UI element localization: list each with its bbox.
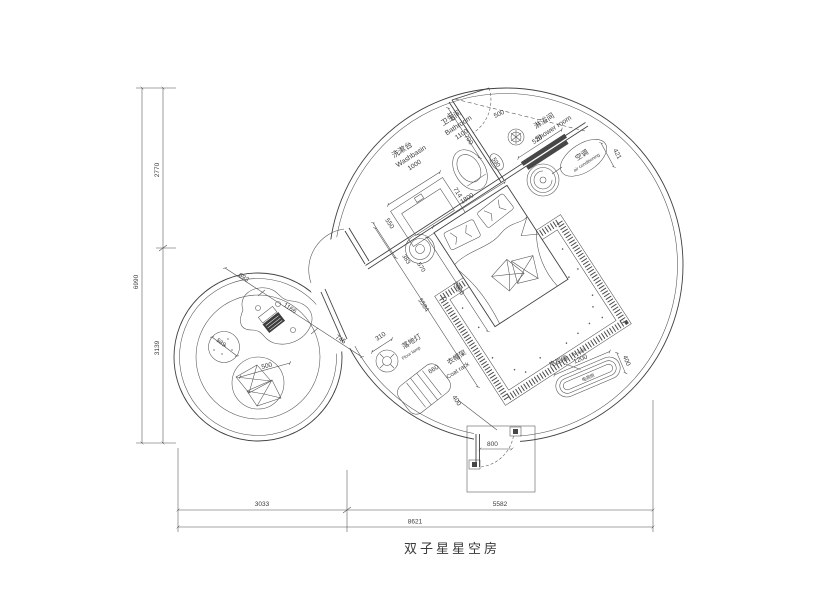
dim-1000-line	[388, 172, 440, 205]
dim-383: 383	[400, 254, 411, 266]
ac-unit	[527, 164, 562, 196]
dim-400-coat: 400	[450, 394, 462, 407]
plan-title: 双子星星空房	[404, 541, 500, 556]
floor-plan-canvas: 520 空调 air conditioning 421	[0, 0, 837, 592]
floor-lamp	[372, 339, 398, 372]
dim-3033: 3033	[255, 501, 270, 508]
bottom-dim-chain: 3033 5582 8621	[178, 400, 653, 532]
tv-cabinet: 电视柜 1200 400 电视墙 TV wall	[545, 331, 634, 401]
tv-cabinet-label: 电视柜	[581, 371, 597, 383]
dim-5584: 5584	[416, 297, 430, 313]
dim-700: 700	[462, 133, 474, 146]
washbasin-label: 洗漱台 Washbasin 1000	[388, 134, 433, 177]
towel-radiator: 520	[514, 123, 570, 171]
dim-421: 421	[611, 148, 622, 161]
dim-6990: 6990	[133, 274, 140, 289]
dim-500-door: 500	[493, 109, 506, 120]
dim-570: 570	[415, 262, 426, 274]
dim-800: 800	[487, 441, 498, 448]
dim-3139: 3139	[154, 340, 161, 355]
floor-drain-icon	[508, 129, 524, 145]
left-dim-chain: 2770 3139 6990	[133, 88, 176, 443]
dim-421-group: 421	[601, 143, 623, 167]
kidney-desk	[240, 288, 312, 344]
dim-8621: 8621	[408, 519, 423, 526]
dim-589: 589	[215, 338, 227, 349]
dim-590-balloon: 590	[487, 151, 506, 172]
floor-plan-drawing: 520 空调 air conditioning 421	[0, 0, 837, 592]
dim-5582: 5582	[493, 501, 508, 508]
dim-500-chair: 500	[261, 361, 274, 371]
shower-area: 520	[452, 88, 585, 171]
entry-door: 800	[458, 400, 535, 492]
dim-2770: 2770	[154, 162, 161, 177]
dim-660: 660	[427, 364, 440, 376]
dim-550: 550	[383, 217, 395, 230]
laptop	[258, 306, 285, 333]
